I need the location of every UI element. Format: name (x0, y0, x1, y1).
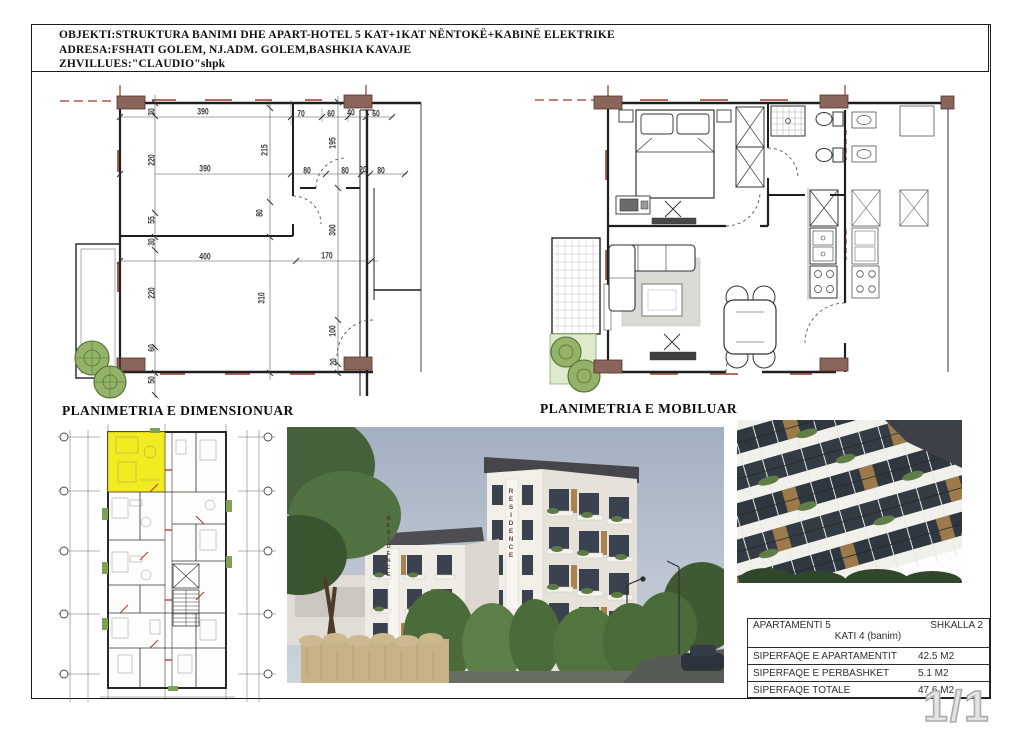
dimensioned-floor-plan-drawing (55, 80, 475, 402)
dimension-label: 390 (197, 107, 208, 118)
dimension-label: 80 (341, 166, 349, 177)
summary-table-header: APARTAMENTI 5 SHKALLA 2 KATI 4 (banim) (748, 619, 989, 648)
dimensioned-plan-title: PLANIMETRIA E DIMENSIONUAR (62, 403, 294, 419)
total-area-label: SIPERFAQE TOTALE (753, 685, 918, 696)
dimension-label: 40 (347, 108, 355, 119)
dimension-label: 30 (147, 238, 158, 246)
dimension-label: 80 (303, 166, 311, 177)
dimension-label: 170 (321, 251, 332, 262)
common-area-label: SIPERFAQE E PERBASHKET (753, 668, 918, 679)
table-row-apartment-area: SIPERFAQE E APARTAMENTIT 42.5 M2 (748, 648, 989, 665)
dimension-label: 300 (328, 224, 339, 235)
dimension-label: 80 (255, 209, 266, 217)
residence-sign-right-building: RESIDENCE (507, 488, 514, 596)
building-exterior-render (287, 427, 724, 683)
residence-sign-left-building: RESIDENCE (385, 516, 391, 598)
facade-closeup-render (737, 420, 962, 583)
dimension-label: 50 (147, 376, 158, 384)
project-address-line: ADRESA:FSHATI GOLEM, NJ.ADM. GOLEM,BASHK… (59, 43, 988, 58)
key-plan-drawing (55, 418, 285, 710)
dimension-label: 60 (327, 109, 335, 120)
floor-label: KATI 4 (banim) (835, 631, 902, 642)
dimension-label: 70 (297, 109, 305, 120)
dimension-label: 80 (377, 166, 385, 177)
table-row-common-area: SIPERFAQE E PERBASHKET 5.1 M2 (748, 665, 989, 682)
dimension-label: 220 (147, 287, 158, 298)
dimension-label: 195 (328, 137, 339, 148)
title-block: OBJEKTI:STRUKTURA BANIMI DHE APART-HOTEL… (31, 24, 989, 72)
area-label: SIPERFAQE E APARTAMENTIT (753, 651, 918, 662)
apartment-label: APARTAMENTI 5 (753, 620, 831, 631)
dimension-label: 390 (199, 164, 210, 175)
project-object-line: OBJEKTI:STRUKTURA BANIMI DHE APART-HOTEL… (59, 28, 988, 43)
highlighted-apartment (108, 432, 165, 492)
staircase-label: SHKALLA 2 (930, 620, 983, 631)
project-developer-line: ZHVILLUES:"CLAUDIO"shpk (59, 57, 988, 72)
dimension-label: 60 (147, 344, 158, 352)
furnished-floor-plan-drawing (530, 80, 955, 402)
balcony-trees (75, 341, 126, 398)
dimension-label: 30 (147, 108, 158, 116)
common-area-value: 5.1 M2 (918, 668, 984, 679)
dimension-label: 20 (329, 358, 340, 366)
area-value: 42.5 M2 (918, 651, 984, 662)
dimension-label: 55 (147, 216, 158, 224)
furnished-plan-title: PLANIMETRIA E MOBILUAR (540, 401, 737, 417)
dimension-label: 60 (372, 109, 380, 120)
dimension-label: 100 (328, 325, 339, 336)
dimension-label: 310 (257, 292, 268, 303)
dimension-label: 400 (199, 252, 210, 263)
dimension-label: 20 (359, 165, 367, 176)
dimension-label: 220 (147, 154, 158, 165)
dimension-label: 215 (260, 144, 271, 155)
page-number: 1/1 (912, 682, 1002, 732)
